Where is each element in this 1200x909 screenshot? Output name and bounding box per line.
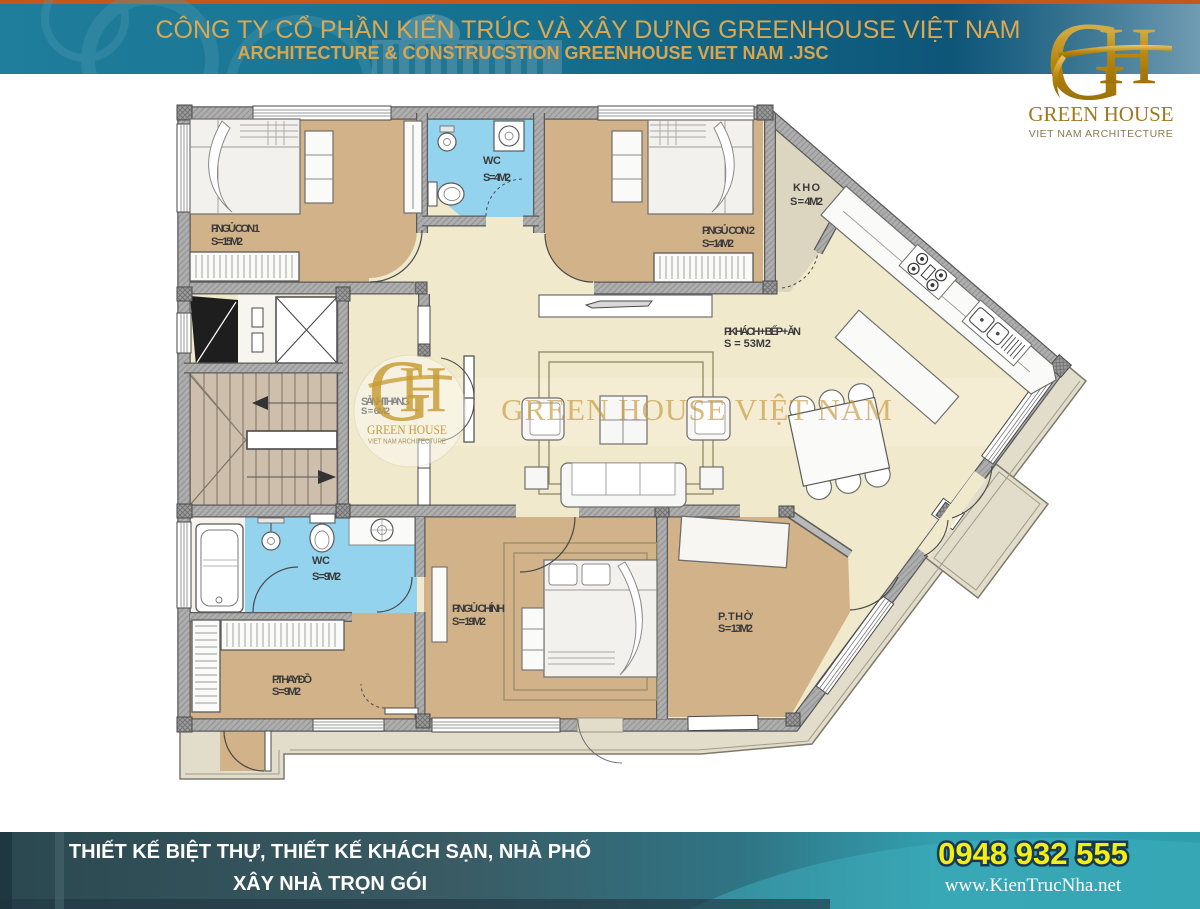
svg-text:P.THAY ĐỒ: P.THAY ĐỒ (272, 673, 312, 686)
svg-text:KHO: KHO (793, 182, 820, 194)
svg-text:ARCHITECTURE & CONSTRUCSTION G: ARCHITECTURE & CONSTRUCSTION GREENHOUSE … (237, 43, 828, 63)
svg-text:GREEN HOUSE: GREEN HOUSE (1028, 102, 1173, 126)
svg-text:WC: WC (312, 555, 330, 567)
svg-text:GREEN HOUSE: GREEN HOUSE (367, 422, 447, 437)
svg-text:P.NGỦ CON 2: P.NGỦ CON 2 (702, 224, 755, 237)
svg-text:S = 15M2: S = 15M2 (211, 236, 243, 248)
svg-text:S = 13M2: S = 13M2 (718, 623, 753, 635)
svg-text:GREEN HOUSE VIỆT NAM: GREEN HOUSE VIỆT NAM (501, 392, 893, 427)
svg-text:XÂY NHÀ TRỌN GÓI: XÂY NHÀ TRỌN GÓI (233, 871, 427, 895)
svg-text:S = 14M2: S = 14M2 (702, 238, 734, 250)
svg-text:www.KienTrucNha.net: www.KienTrucNha.net (945, 875, 1122, 896)
svg-text:P.NGỦ CON 1: P.NGỦ CON 1 (211, 222, 260, 235)
svg-text:S = 9M2: S = 9M2 (272, 686, 301, 698)
svg-text:S = 4M2: S = 4M2 (790, 196, 823, 208)
svg-text:P.NGỦ CHÍNH: P.NGỦ CHÍNH (452, 602, 505, 615)
svg-text:H: H (399, 353, 447, 426)
svg-text:P.THỜ: P.THỜ (718, 610, 754, 623)
svg-text:H: H (1098, 10, 1157, 101)
svg-text:S = 19M2: S = 19M2 (452, 616, 486, 628)
svg-text:P.KHÁCH + BẾP + ĂN: P.KHÁCH + BẾP + ĂN (724, 325, 801, 338)
svg-text:S = 9M2: S = 9M2 (312, 571, 341, 583)
svg-text:THIẾT KẾ BIỆT THỰ, THIẾT KẾ KH: THIẾT KẾ BIỆT THỰ, THIẾT KẾ KHÁCH SẠN, N… (69, 839, 591, 863)
svg-text:0948 932 555: 0948 932 555 (938, 836, 1128, 871)
svg-text:VIET NAM ARCHITECTURE: VIET NAM ARCHITECTURE (1029, 128, 1174, 140)
svg-text:S = 53M2: S = 53M2 (724, 338, 771, 350)
svg-text:CÔNG TY CỔ PHẦN KIẾN TRÚC VÀ X: CÔNG TY CỔ PHẦN KIẾN TRÚC VÀ XÂY DỰNG GR… (155, 14, 1020, 44)
svg-text:VIET NAM ARCHITECTURE: VIET NAM ARCHITECTURE (368, 439, 446, 446)
svg-text:S = 4M2: S = 4M2 (483, 172, 511, 184)
svg-text:WC: WC (483, 155, 501, 167)
